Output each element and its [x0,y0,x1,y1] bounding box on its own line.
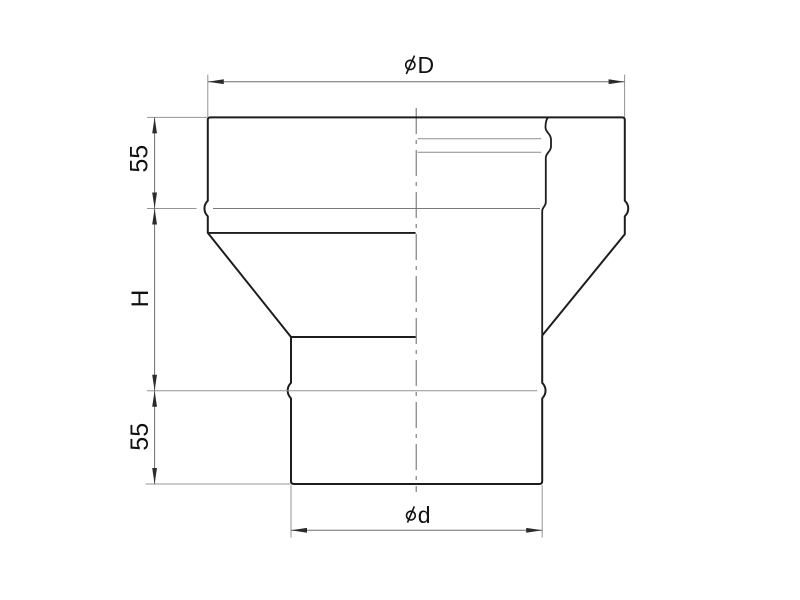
svg-text:d: d [418,502,431,528]
svg-text:H: H [127,290,154,308]
svg-text:55: 55 [126,423,154,451]
svg-text:55: 55 [125,145,153,173]
svg-text:D: D [418,52,435,78]
